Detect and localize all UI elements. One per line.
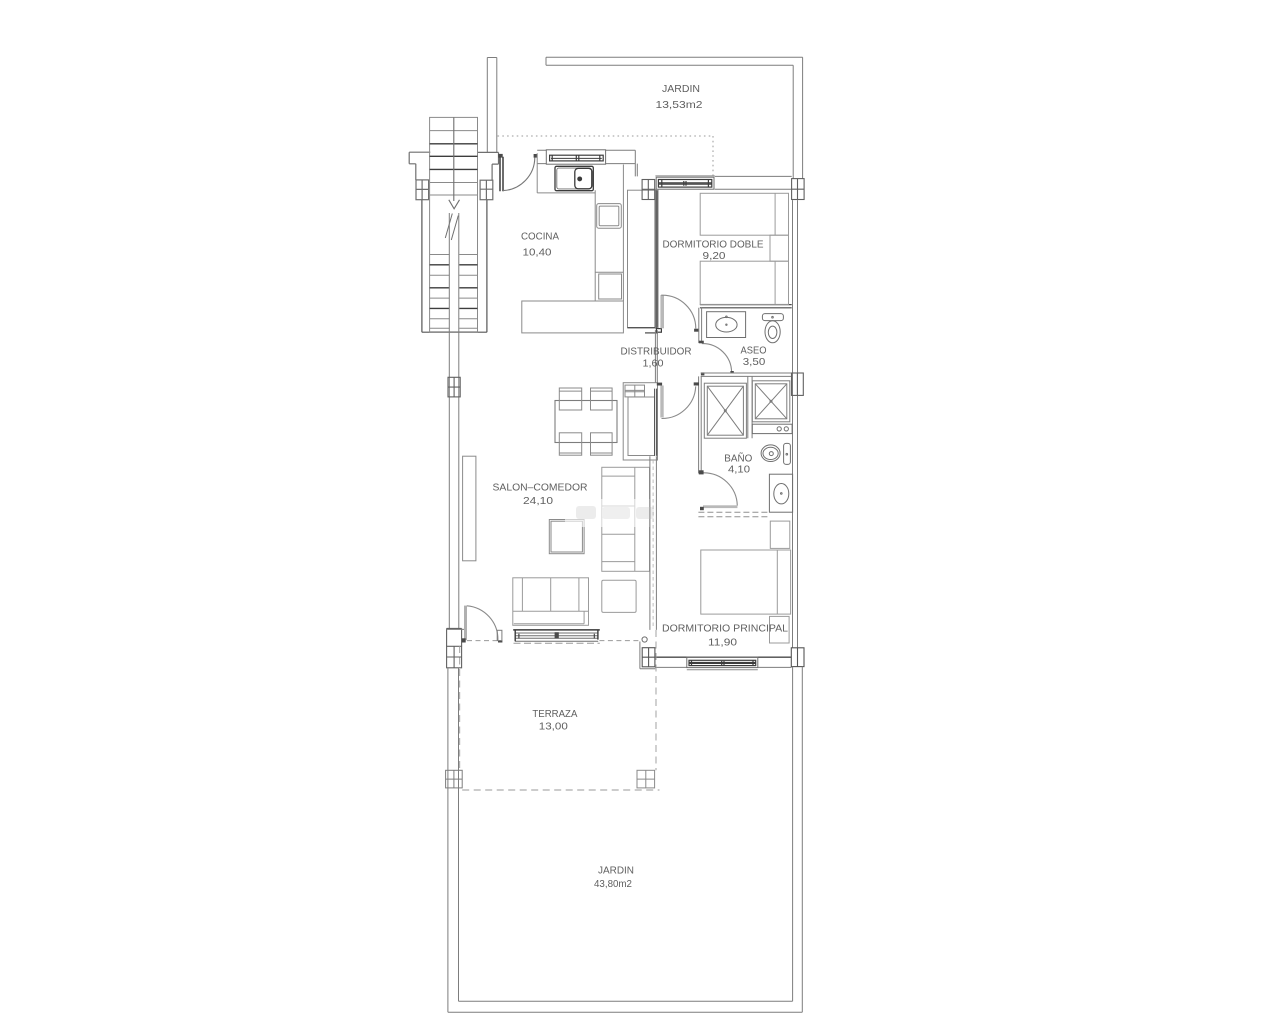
svg-text:4,10: 4,10: [728, 464, 750, 476]
svg-text:11,90: 11,90: [708, 637, 737, 649]
svg-text:24,10: 24,10: [523, 495, 553, 507]
svg-text:3,50: 3,50: [743, 356, 766, 368]
svg-text:COCINA: COCINA: [521, 231, 559, 243]
svg-text:1,60: 1,60: [643, 357, 664, 369]
svg-text:DORMITORIO DOBLE: DORMITORIO DOBLE: [663, 239, 764, 251]
svg-text:DISTRIBUIDOR: DISTRIBUIDOR: [621, 346, 692, 358]
svg-text:JARDIN: JARDIN: [598, 865, 634, 877]
svg-text:JARDIN: JARDIN: [662, 83, 700, 95]
svg-text:ASEO: ASEO: [741, 344, 767, 356]
svg-text:TERRAZA: TERRAZA: [532, 708, 577, 720]
svg-text:13,00: 13,00: [539, 721, 568, 733]
svg-text:SALON–COMEDOR: SALON–COMEDOR: [493, 482, 588, 494]
svg-text:13,53m2: 13,53m2: [656, 99, 703, 111]
svg-text:DORMITORIO PRINCIPAL: DORMITORIO PRINCIPAL: [662, 623, 788, 635]
svg-text:BAÑO: BAÑO: [724, 451, 752, 464]
svg-text:10,40: 10,40: [523, 247, 552, 259]
svg-text:9,20: 9,20: [703, 250, 726, 262]
svg-text:43,80m2: 43,80m2: [594, 878, 632, 890]
